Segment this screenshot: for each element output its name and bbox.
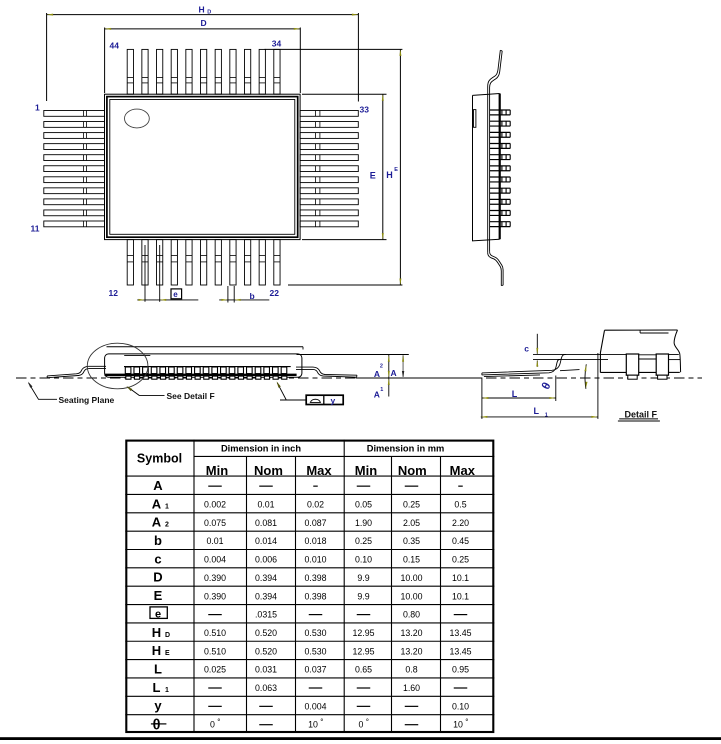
svg-text:0.014: 0.014 (255, 536, 277, 546)
svg-text:0.390: 0.390 (204, 591, 226, 601)
svg-text:E: E (165, 650, 170, 657)
svg-text:10.00: 10.00 (400, 573, 422, 583)
svg-text:2.20: 2.20 (452, 518, 469, 528)
svg-text:Detail F: Detail F (625, 410, 658, 420)
svg-text:13.45: 13.45 (449, 646, 471, 656)
svg-text:A: A (374, 369, 380, 379)
svg-text:44: 44 (110, 40, 120, 50)
svg-text:Min: Min (355, 463, 377, 478)
svg-text:0.80: 0.80 (403, 610, 420, 620)
svg-text:9.9: 9.9 (357, 573, 369, 583)
svg-text:D: D (153, 570, 162, 585)
svg-text:Symbol: Symbol (137, 452, 182, 466)
svg-text:12.95: 12.95 (352, 628, 374, 638)
svg-text:0.075: 0.075 (204, 518, 226, 528)
svg-text:L: L (154, 661, 162, 676)
svg-text:c: c (524, 344, 529, 354)
svg-text:θ: θ (540, 381, 554, 392)
svg-text:A: A (152, 515, 162, 530)
svg-text:0.087: 0.087 (304, 518, 326, 528)
svg-text:10.1: 10.1 (452, 591, 469, 601)
svg-text:1.60: 1.60 (403, 683, 420, 693)
svg-text:E: E (370, 171, 376, 181)
svg-text:0.398: 0.398 (304, 591, 326, 601)
svg-text:E: E (154, 588, 163, 603)
svg-text:0.65: 0.65 (355, 665, 372, 675)
svg-text:Dimension in inch: Dimension in inch (221, 443, 301, 453)
svg-text:D: D (207, 9, 211, 15)
svg-text:A: A (374, 389, 380, 399)
svg-text:0.15: 0.15 (403, 555, 420, 565)
svg-text:0.02: 0.02 (307, 500, 324, 510)
svg-text:0.8: 0.8 (405, 665, 417, 675)
svg-text:10: 10 (308, 720, 318, 730)
svg-text:0: 0 (210, 720, 215, 730)
svg-text:2: 2 (380, 363, 383, 369)
svg-text:Nom: Nom (254, 463, 283, 478)
svg-text:0.95: 0.95 (452, 665, 469, 675)
svg-text:0.398: 0.398 (304, 573, 326, 583)
svg-text:13.45: 13.45 (449, 628, 471, 638)
svg-text:H: H (386, 170, 393, 180)
svg-text:1: 1 (35, 103, 40, 113)
svg-text:A: A (152, 496, 162, 511)
svg-text:b: b (250, 291, 255, 301)
svg-text:0.010: 0.010 (304, 555, 326, 565)
svg-text:0.394: 0.394 (255, 573, 277, 583)
svg-text:9.9: 9.9 (357, 591, 369, 601)
svg-text:0.004: 0.004 (304, 701, 326, 711)
svg-text:10: 10 (453, 720, 463, 730)
svg-text:0.530: 0.530 (304, 628, 326, 638)
svg-text:13.20: 13.20 (400, 646, 422, 656)
svg-text:0.063: 0.063 (255, 683, 277, 693)
svg-text:0.025: 0.025 (204, 665, 226, 675)
svg-text:L: L (153, 680, 161, 695)
svg-text:0.031: 0.031 (255, 665, 277, 675)
svg-text:1: 1 (545, 412, 548, 418)
svg-text:0.006: 0.006 (255, 555, 277, 565)
svg-text:A: A (391, 368, 397, 378)
svg-text:°: ° (217, 718, 220, 727)
svg-text:1: 1 (165, 687, 169, 694)
svg-text:1: 1 (380, 387, 383, 393)
svg-text:0.510: 0.510 (204, 628, 226, 638)
svg-text:Max: Max (306, 463, 332, 478)
svg-text:°: ° (320, 718, 323, 727)
svg-text:0.05: 0.05 (355, 500, 372, 510)
svg-text:0.037: 0.037 (304, 665, 326, 675)
svg-text:Min: Min (206, 463, 228, 478)
svg-text:H: H (152, 643, 161, 658)
svg-text:y: y (331, 395, 336, 405)
svg-text:0.520: 0.520 (255, 646, 277, 656)
svg-text:H: H (152, 625, 161, 640)
svg-text:D: D (165, 632, 170, 639)
svg-text:0.530: 0.530 (304, 646, 326, 656)
svg-text:b: b (154, 533, 162, 548)
svg-text:A: A (153, 478, 163, 493)
svg-text:0.390: 0.390 (204, 573, 226, 583)
svg-text:1.90: 1.90 (355, 518, 372, 528)
svg-text:0.10: 0.10 (355, 555, 372, 565)
svg-text:0.018: 0.018 (304, 536, 326, 546)
svg-text:2: 2 (165, 522, 169, 529)
svg-text:22: 22 (270, 288, 280, 298)
svg-text:Seating Plane: Seating Plane (59, 395, 115, 405)
svg-text:34: 34 (272, 38, 282, 48)
svg-text:e: e (173, 290, 178, 299)
svg-text:0.45: 0.45 (452, 536, 469, 546)
svg-text:°: ° (366, 718, 369, 727)
svg-text:0.01: 0.01 (206, 536, 223, 546)
svg-text:33: 33 (360, 104, 370, 114)
svg-text:0.520: 0.520 (255, 628, 277, 638)
svg-text:12: 12 (109, 288, 119, 298)
svg-text:0.25: 0.25 (355, 536, 372, 546)
svg-text:0.510: 0.510 (204, 646, 226, 656)
svg-text:Max: Max (450, 463, 476, 478)
svg-text:y: y (154, 698, 162, 713)
svg-text:0.004: 0.004 (204, 555, 226, 565)
svg-text:L: L (512, 389, 518, 399)
svg-text:10.00: 10.00 (400, 591, 422, 601)
svg-text:θ: θ (153, 718, 161, 734)
svg-text:0.394: 0.394 (255, 591, 277, 601)
svg-text:e: e (155, 609, 161, 621)
svg-text:12.95: 12.95 (352, 646, 374, 656)
svg-text:10.1: 10.1 (452, 573, 469, 583)
svg-text:H: H (199, 4, 205, 14)
svg-text:0.002: 0.002 (204, 500, 226, 510)
svg-text:See Detail F: See Detail F (167, 391, 215, 401)
svg-text:0: 0 (359, 720, 364, 730)
svg-text:.0315: .0315 (255, 610, 277, 620)
svg-text:11: 11 (31, 224, 40, 234)
svg-text:L: L (534, 406, 540, 416)
svg-text:1: 1 (165, 503, 169, 510)
svg-text:0.5: 0.5 (454, 500, 466, 510)
svg-text:E: E (394, 167, 398, 173)
svg-text:D: D (201, 18, 207, 28)
svg-text:0.081: 0.081 (255, 518, 277, 528)
svg-text:Nom: Nom (398, 463, 427, 478)
svg-text:Dimension in mm: Dimension in mm (367, 443, 445, 453)
svg-text:13.20: 13.20 (400, 628, 422, 638)
svg-text:°: ° (465, 718, 468, 727)
svg-text:0.35: 0.35 (403, 536, 420, 546)
svg-text:0.25: 0.25 (403, 500, 420, 510)
svg-text:c: c (154, 551, 161, 566)
svg-text:0.10: 0.10 (452, 701, 469, 711)
svg-text:0.25: 0.25 (452, 555, 469, 565)
svg-text:2.05: 2.05 (403, 518, 420, 528)
svg-text:0.01: 0.01 (257, 500, 274, 510)
